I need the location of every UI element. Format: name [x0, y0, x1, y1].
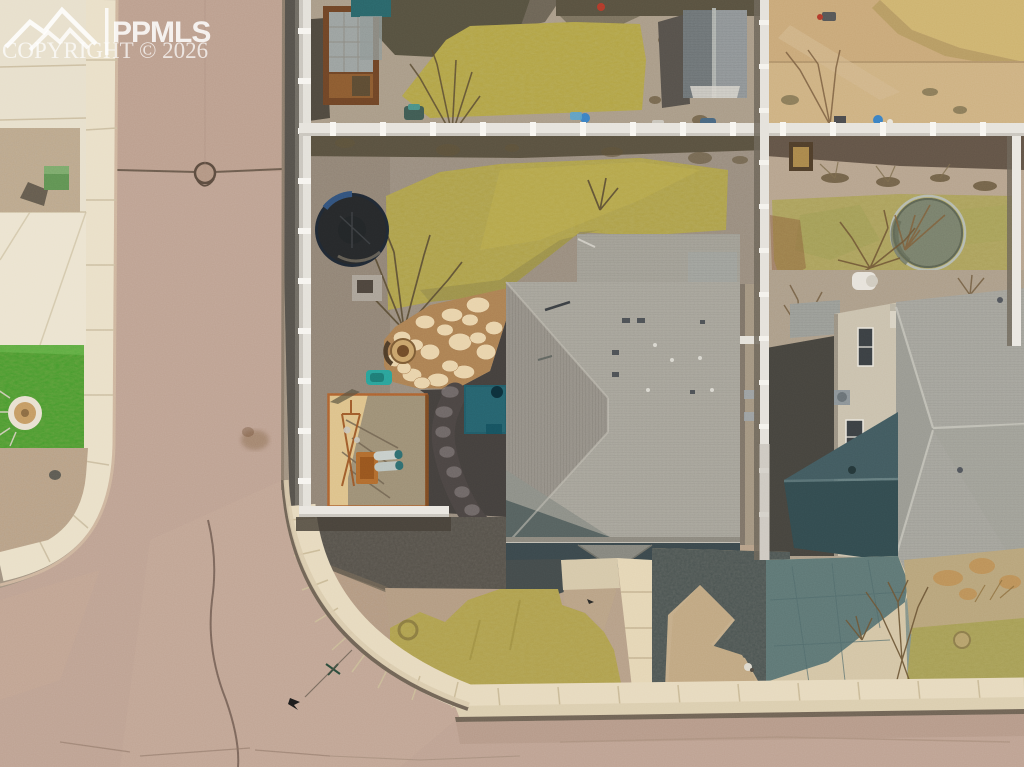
- svg-text:COPYRIGHT © 2026: COPYRIGHT © 2026: [2, 38, 208, 63]
